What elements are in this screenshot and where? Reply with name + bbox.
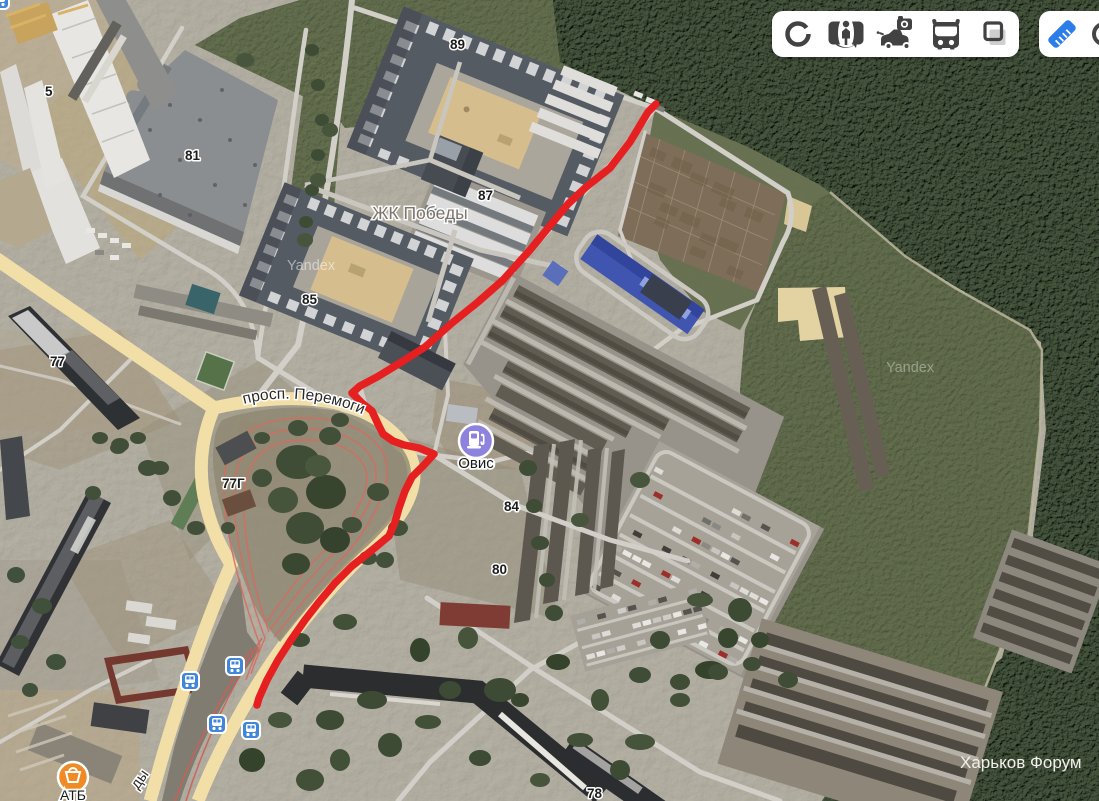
svg-text:ЖК Победы: ЖК Победы — [372, 203, 468, 223]
svg-text:Харьков Форум: Харьков Форум — [960, 753, 1082, 772]
svg-text:5: 5 — [45, 84, 53, 99]
svg-text:80: 80 — [492, 562, 507, 577]
svg-text:77Г: 77Г — [222, 476, 245, 491]
svg-text:77: 77 — [50, 354, 65, 369]
svg-text:84: 84 — [504, 499, 520, 514]
svg-text:81: 81 — [185, 148, 201, 163]
svg-text:87: 87 — [478, 188, 493, 203]
svg-text:89: 89 — [450, 37, 465, 52]
svg-text:Yandex: Yandex — [287, 258, 336, 274]
svg-text:Yandex: Yandex — [886, 360, 935, 376]
svg-text:78: 78 — [587, 786, 603, 801]
svg-text:АТБ: АТБ — [60, 787, 86, 801]
svg-text:Овис: Овис — [458, 455, 494, 472]
svg-text:85: 85 — [302, 292, 318, 307]
